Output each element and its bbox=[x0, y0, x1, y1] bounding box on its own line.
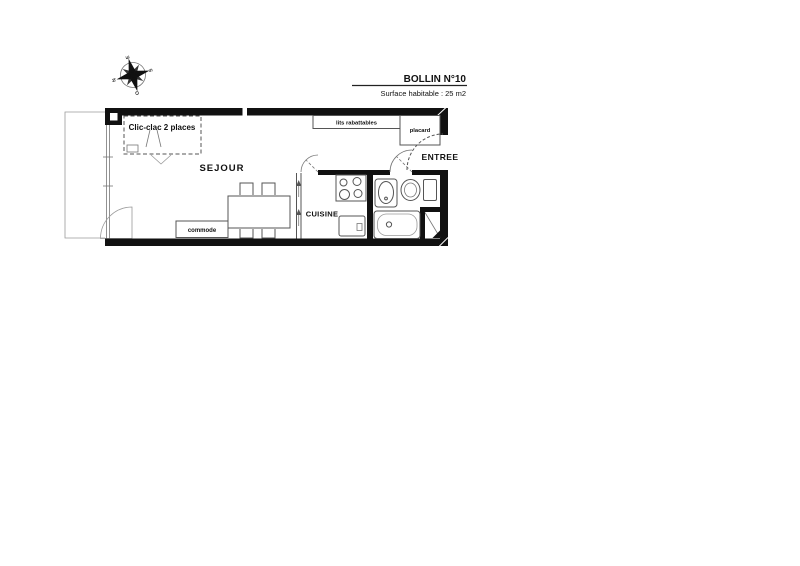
bathtub-inner bbox=[378, 214, 418, 236]
balcony-outline bbox=[65, 112, 105, 238]
closet: placard bbox=[400, 116, 440, 146]
project-title: BOLLIN N°10 bbox=[404, 74, 467, 85]
floor-plan-page: BOLLIN N°10 Surface habitable : 25 m2 N … bbox=[0, 0, 800, 566]
burner bbox=[340, 179, 347, 186]
sofa-bed-label: Clic-clac 2 places bbox=[129, 123, 196, 132]
technical-shaft bbox=[425, 213, 440, 239]
toilet-bowl-inner bbox=[405, 183, 417, 197]
shaft-wall-top bbox=[420, 207, 448, 212]
compass-letter-south: S bbox=[148, 67, 155, 72]
kitchen-unit-detail bbox=[357, 224, 362, 231]
window-wall bbox=[103, 125, 113, 239]
bathroom-door-leaf bbox=[397, 157, 413, 173]
kitchen-unit bbox=[339, 216, 365, 236]
room-label-entree: ENTREE bbox=[422, 152, 459, 162]
commode-label: commode bbox=[188, 228, 217, 234]
wall-bottom bbox=[105, 239, 448, 247]
chair bbox=[240, 229, 253, 238]
fold-beds: lits rabattables bbox=[313, 116, 400, 129]
wall-bathroom-top bbox=[412, 170, 448, 175]
sofa-leg bbox=[127, 145, 138, 152]
chair bbox=[262, 183, 275, 195]
corner-pillar-core bbox=[110, 113, 118, 121]
wall-top-left bbox=[105, 108, 243, 116]
closet-label: placard bbox=[410, 128, 431, 134]
room-label-cuisine: CUISINE bbox=[306, 210, 339, 219]
chair bbox=[262, 229, 275, 238]
wall-top-right bbox=[247, 108, 445, 116]
kitchen-door-leaf bbox=[306, 160, 318, 172]
wall-kitchen-bathroom bbox=[367, 175, 373, 239]
bathtub-drain bbox=[386, 222, 391, 227]
burner bbox=[354, 190, 362, 198]
compass-letter-north: N bbox=[111, 77, 118, 82]
fold-beds-label: lits rabattables bbox=[336, 121, 377, 127]
sofa-fold-lines bbox=[146, 130, 161, 147]
dining-table-set bbox=[228, 183, 290, 238]
sofa-unfold-arrow bbox=[151, 155, 171, 164]
wall-kitchen-top bbox=[318, 170, 390, 175]
balcony-door-swing bbox=[101, 207, 133, 239]
room-label-sejour: SEJOUR bbox=[199, 163, 244, 174]
sofa-bed-outline bbox=[124, 116, 201, 154]
sofa-bed: Clic-clac 2 places bbox=[124, 116, 201, 164]
washbasin-drain bbox=[385, 197, 388, 200]
kitchen-unit-outline bbox=[339, 216, 365, 236]
bathtub bbox=[374, 211, 420, 239]
compass-letter-east: E bbox=[125, 54, 132, 59]
compass-rose: N E S O bbox=[106, 49, 159, 100]
toilet bbox=[401, 180, 437, 201]
title-block: BOLLIN N°10 Surface habitable : 25 m2 bbox=[352, 74, 467, 98]
commode: commode bbox=[176, 221, 228, 238]
compass-letter-west: O bbox=[134, 90, 141, 95]
surface-area-label: Surface habitable : 25 m2 bbox=[381, 89, 466, 98]
washbasin bbox=[375, 179, 397, 207]
floor-plan-drawing: BOLLIN N°10 Surface habitable : 25 m2 N … bbox=[0, 0, 800, 566]
partition-sliding-door bbox=[296, 173, 301, 239]
burner bbox=[340, 190, 350, 200]
burner bbox=[353, 178, 361, 186]
chair bbox=[240, 183, 253, 195]
stove bbox=[336, 175, 366, 201]
toilet-tank bbox=[424, 180, 437, 201]
dining-table bbox=[228, 196, 290, 228]
